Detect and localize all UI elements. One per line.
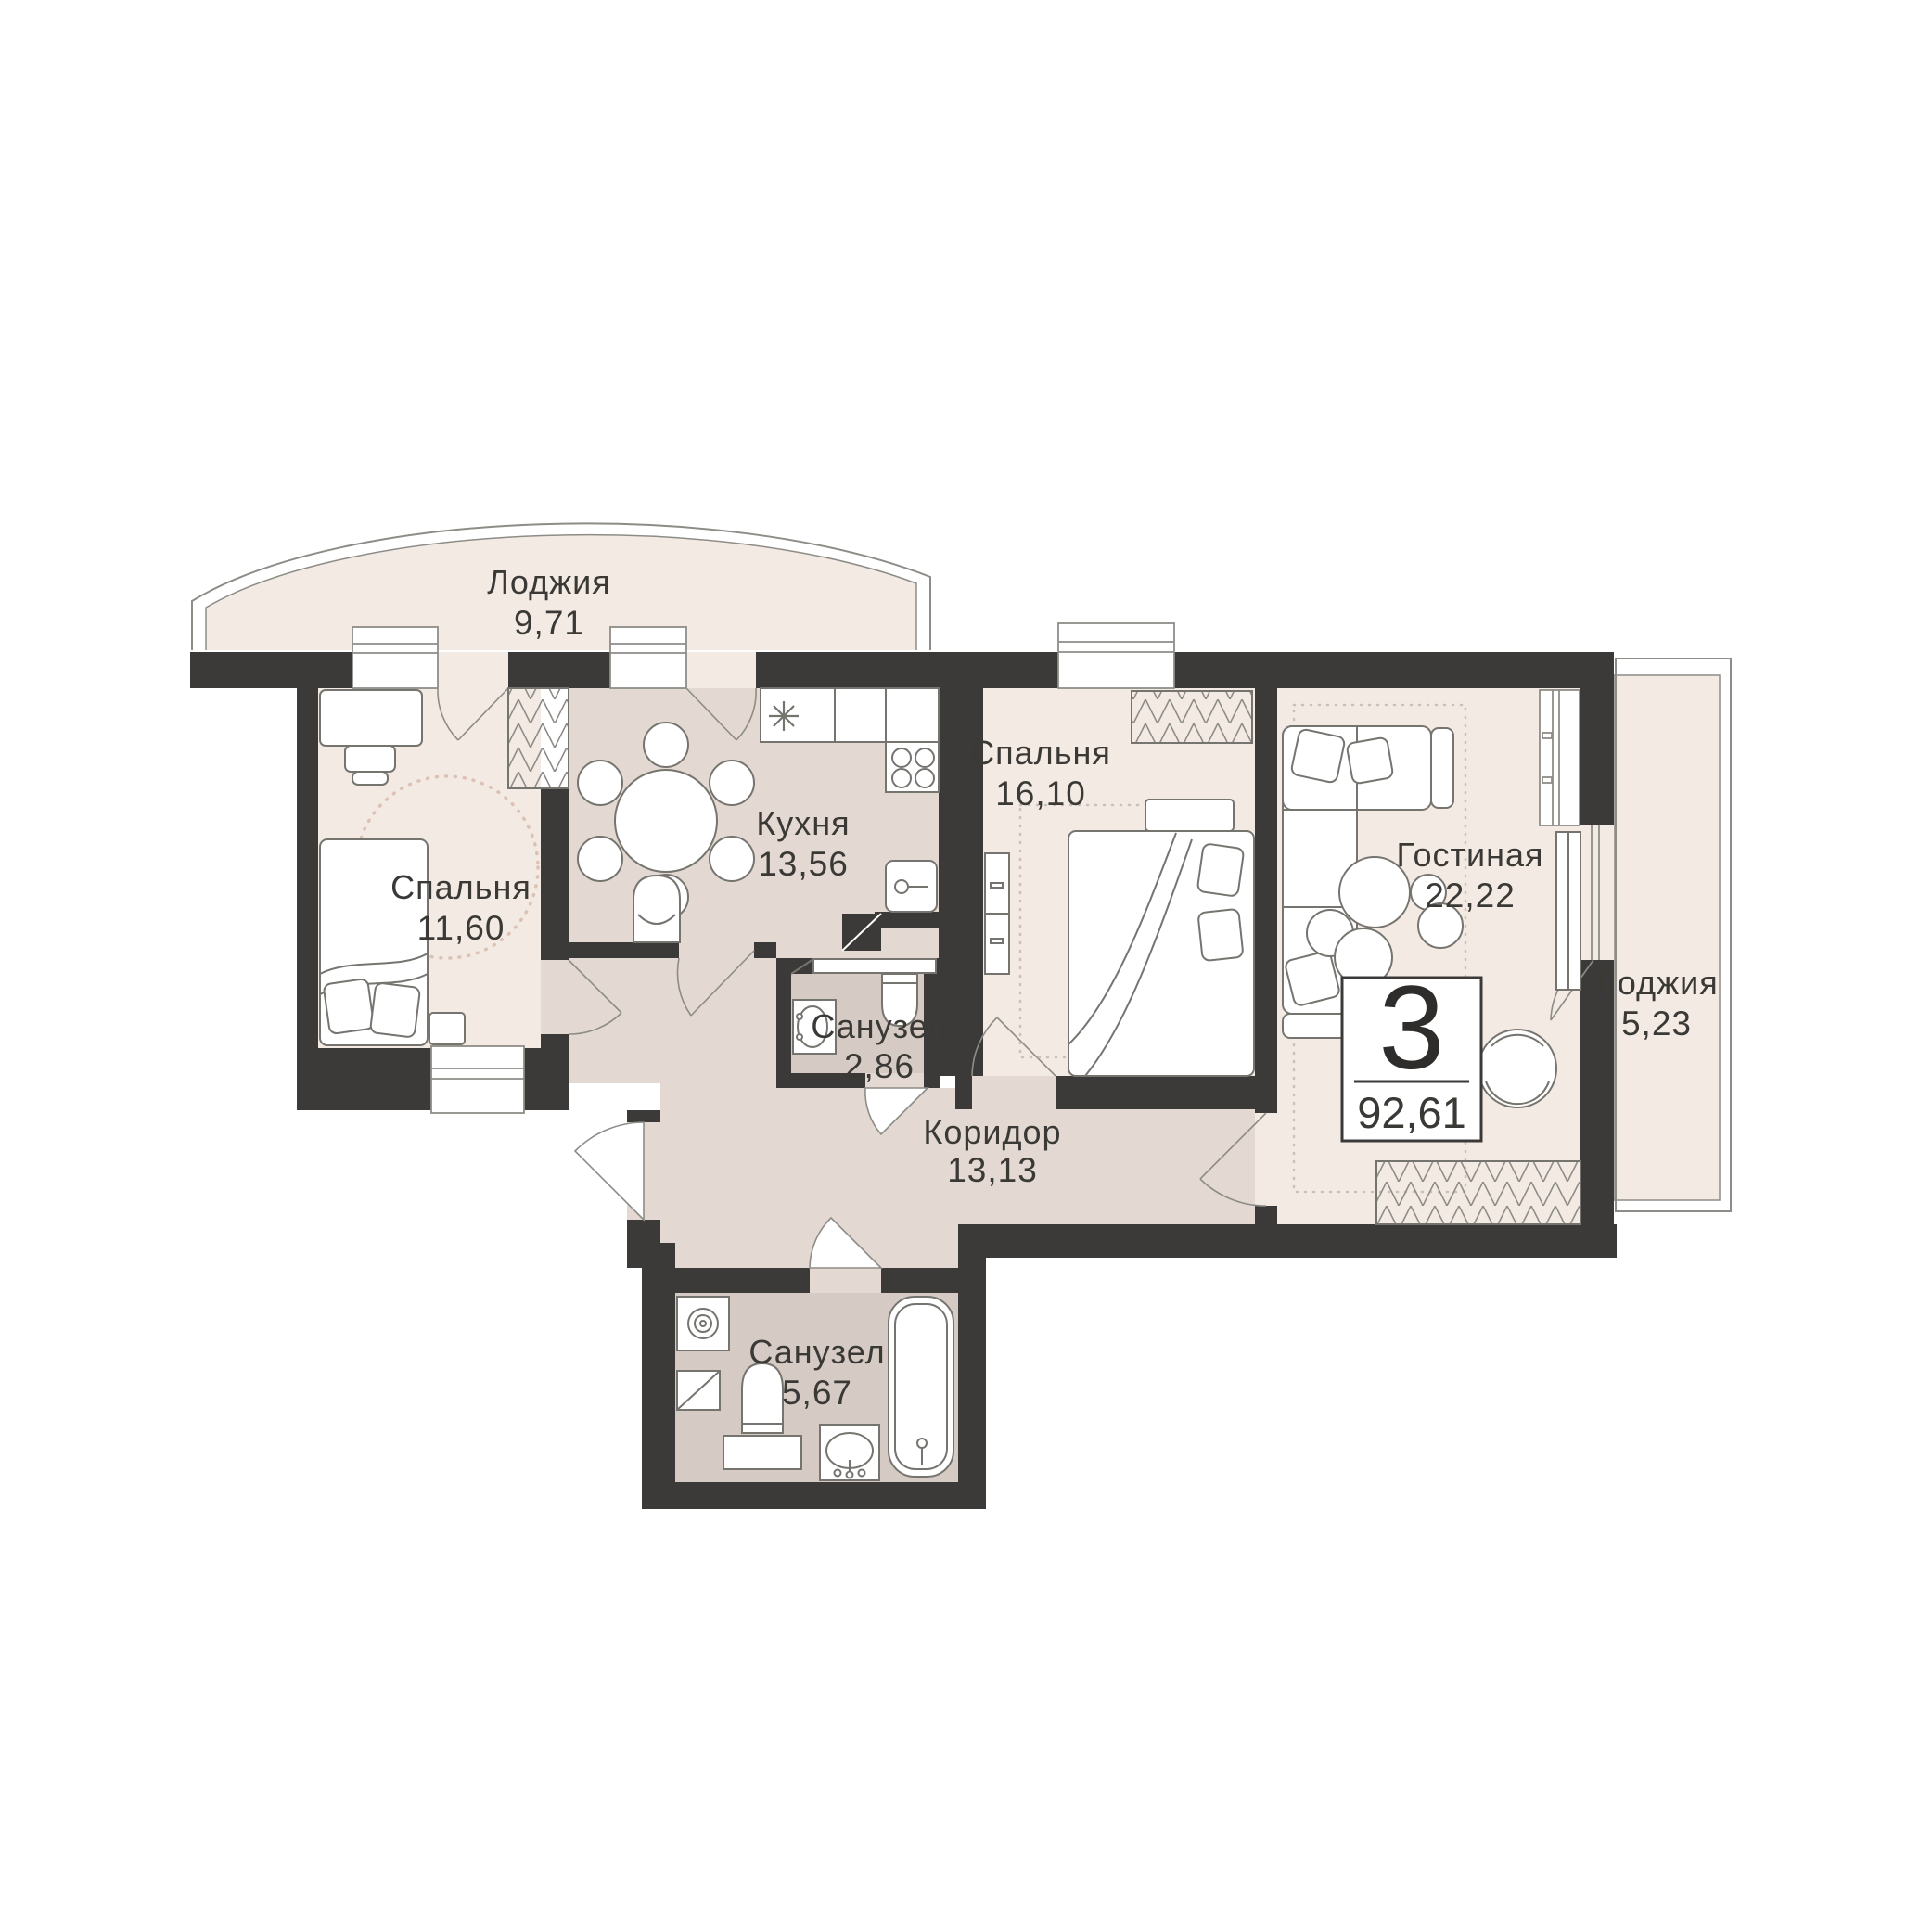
shelf-icon [791, 959, 936, 974]
label-kitchen-area: 13,56 [758, 845, 849, 883]
kitchen-sink-icon [886, 861, 937, 912]
label-bedroom-left-area: 11,60 [417, 909, 505, 947]
label-living-area: 22,22 [1425, 876, 1516, 915]
badge-total-area: 92,61 [1357, 1088, 1466, 1137]
dresser-icon [985, 853, 1009, 974]
label-loggia-right-name: Лоджия [1594, 964, 1719, 1002]
bedroom-left-window [352, 627, 438, 688]
bath-shelf-icon [677, 1371, 720, 1410]
floor-plan-drawing: Лоджия 9,71 Спальня 11,60 Кухня 13,56 Сп… [0, 0, 1932, 1932]
label-bathroom-small-name: Санузел [811, 1007, 947, 1045]
label-living-name: Гостиная [1396, 836, 1543, 874]
badge-rooms-count: 3 [1378, 962, 1444, 1094]
loggia-right [1614, 659, 1731, 1211]
label-kitchen-name: Кухня [756, 804, 850, 842]
vent-shaft [842, 914, 881, 951]
label-corridor-area: 13,13 [947, 1151, 1038, 1189]
wardrobe-living-icon [1376, 1161, 1580, 1224]
cooktop-icon [886, 742, 939, 792]
wardrobe-middle-icon [1132, 691, 1252, 743]
kitchen-cabinet-icon [633, 876, 680, 942]
label-loggia-top-name: Лоджия [487, 563, 611, 601]
label-bedroom-middle-name: Спальня [970, 734, 1111, 772]
label-bedroom-left-name: Спальня [390, 868, 531, 906]
armchair-icon [1478, 1030, 1556, 1107]
floor-plan-page: Лоджия 9,71 Спальня 11,60 Кухня 13,56 Сп… [0, 0, 1932, 1932]
kitchen-window [610, 627, 686, 688]
wardrobe-icon [508, 688, 569, 788]
bed-double-icon [1068, 800, 1254, 1076]
bedroom-left-bottom-window [431, 1046, 524, 1113]
bedroom-middle-window [1058, 623, 1174, 688]
washing-machine-icon [677, 1297, 729, 1350]
sink-large-icon [820, 1425, 879, 1480]
label-bedroom-middle-area: 16,10 [995, 774, 1086, 812]
apartment-type-badge: 3 92,61 [1342, 962, 1481, 1141]
label-loggia-right-area: 5,23 [1621, 1004, 1692, 1043]
bathtub-icon [889, 1297, 953, 1477]
label-loggia-top-area: 9,71 [514, 604, 584, 642]
label-bathroom-small-area: 2,86 [844, 1047, 915, 1085]
label-bathroom-large-name: Санузел [748, 1333, 885, 1371]
living-window-unit [1540, 690, 1580, 825]
entrance-door [575, 1122, 644, 1220]
label-bathroom-large-area: 5,67 [782, 1374, 852, 1412]
label-corridor-name: Коридор [923, 1113, 1061, 1151]
tv-stand-icon [1556, 832, 1580, 990]
